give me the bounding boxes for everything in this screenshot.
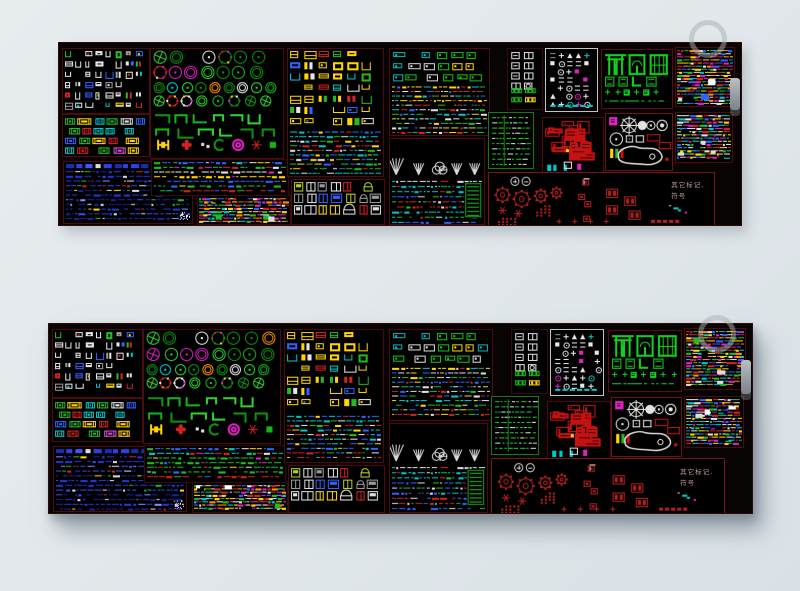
tree-blocks-glyphs: [390, 424, 487, 512]
dense-mix-left-glyphs: [198, 196, 289, 224]
section-other-marks-symbols: 其它标记, 符号: [488, 172, 715, 226]
section-dense-mix-right: [675, 112, 734, 162]
car-blocks-glyphs: [53, 399, 142, 441]
section-pool-compass-blocks: [605, 113, 673, 171]
bed-sofa-blocks-glyphs: [288, 49, 383, 176]
section-dense-mix-right: [684, 396, 744, 448]
section-furniture-blocks: [62, 48, 151, 114]
machine-blocks-text-glyphs: [390, 330, 492, 420]
section-multicolor-text-rows: [144, 445, 287, 483]
section-dense-mix-left: [197, 195, 290, 225]
red-furniture-blocks-glyphs: [543, 118, 603, 173]
section-tree-blocks: [389, 423, 488, 513]
appliance-blocks-glyphs: [512, 330, 547, 393]
section-appliance-blocks: [511, 329, 548, 394]
dense-mix-right-glyphs: [676, 113, 733, 161]
red-furniture-blocks-glyphs: [548, 402, 610, 459]
section-tree-blocks: [389, 138, 485, 225]
section-green-gate-elevations: [601, 49, 673, 109]
dense-mix-topright-glyphs: [676, 48, 734, 106]
green-gate-elevations-glyphs: [602, 50, 672, 108]
section-green-gate-elevations: [608, 330, 682, 392]
symbol-arrows-glyphs: [546, 49, 596, 112]
page-background: 其它标记, 符号 其它标记, 符号: [0, 0, 800, 591]
section-door-elevations: [288, 465, 385, 513]
section-machine-blocks-text: [389, 48, 490, 137]
section-multicolor-text-rows: [151, 159, 289, 196]
appliance-blocks-glyphs: [508, 49, 542, 110]
furniture-blocks-glyphs: [53, 330, 142, 397]
furniture-blocks-glyphs: [63, 49, 150, 113]
bed-sofa-blocks-glyphs: [285, 330, 383, 462]
section-pool-compass-blocks: [611, 397, 681, 457]
section-green-schedule-table: [491, 396, 539, 455]
dense-mix-topright-glyphs: [685, 329, 745, 389]
section-green-schedule-table: [488, 112, 534, 169]
tree-blocks-glyphs: [390, 139, 484, 224]
section-red-furniture-blocks: [542, 117, 604, 174]
cad-sheet-preview-top[interactable]: 其它标记, 符号: [58, 42, 742, 226]
car-blocks-glyphs: [63, 115, 150, 155]
section-plant-blocks: [143, 329, 281, 444]
scrollbar-thumb: [730, 78, 740, 111]
dense-mix-right-glyphs: [685, 397, 743, 447]
dense-mix-left-glyphs: [193, 483, 287, 512]
section-furniture-blocks: [52, 329, 143, 398]
section-plant-blocks: [150, 48, 284, 159]
section-car-blocks: [62, 114, 151, 156]
section-symbol-arrows: [550, 329, 604, 396]
section-machine-blocks-text: [389, 329, 493, 421]
door-elevations-glyphs: [289, 466, 384, 512]
door-elevations-glyphs: [292, 180, 384, 224]
pool-compass-blocks-glyphs: [606, 114, 672, 170]
pool-compass-blocks-glyphs: [612, 398, 680, 456]
other-marks-symbols-glyphs: [489, 173, 714, 225]
scrollbar-thumb: [741, 360, 751, 394]
multicolor-text-rows-glyphs: [145, 446, 286, 482]
section-door-elevations: [291, 179, 385, 225]
plant-blocks-glyphs: [151, 49, 283, 158]
green-schedule-table-glyphs: [492, 397, 538, 454]
cad-sheet-preview-bottom[interactable]: 其它标记, 符号: [48, 323, 753, 514]
green-gate-elevations-glyphs: [609, 331, 681, 391]
section-red-furniture-blocks: [547, 401, 611, 460]
green-schedule-table-glyphs: [489, 113, 533, 168]
section-dense-mix-topright: [684, 328, 746, 390]
plant-blocks-glyphs: [144, 330, 280, 443]
other-marks-symbols-glyphs: [492, 459, 724, 513]
multicolor-text-rows-glyphs: [152, 160, 288, 195]
section-car-blocks: [52, 398, 143, 442]
section-bed-sofa-blocks: [287, 48, 384, 177]
section-dense-mix-topright: [675, 47, 735, 107]
section-other-marks-symbols: 其它标记, 符号: [491, 458, 725, 514]
machine-blocks-text-glyphs: [390, 49, 489, 136]
section-dense-mix-left: [192, 482, 288, 513]
section-symbol-arrows: [545, 48, 597, 113]
section-bed-sofa-blocks: [284, 329, 384, 463]
symbol-arrows-glyphs: [551, 330, 603, 395]
section-appliance-blocks: [507, 48, 543, 111]
